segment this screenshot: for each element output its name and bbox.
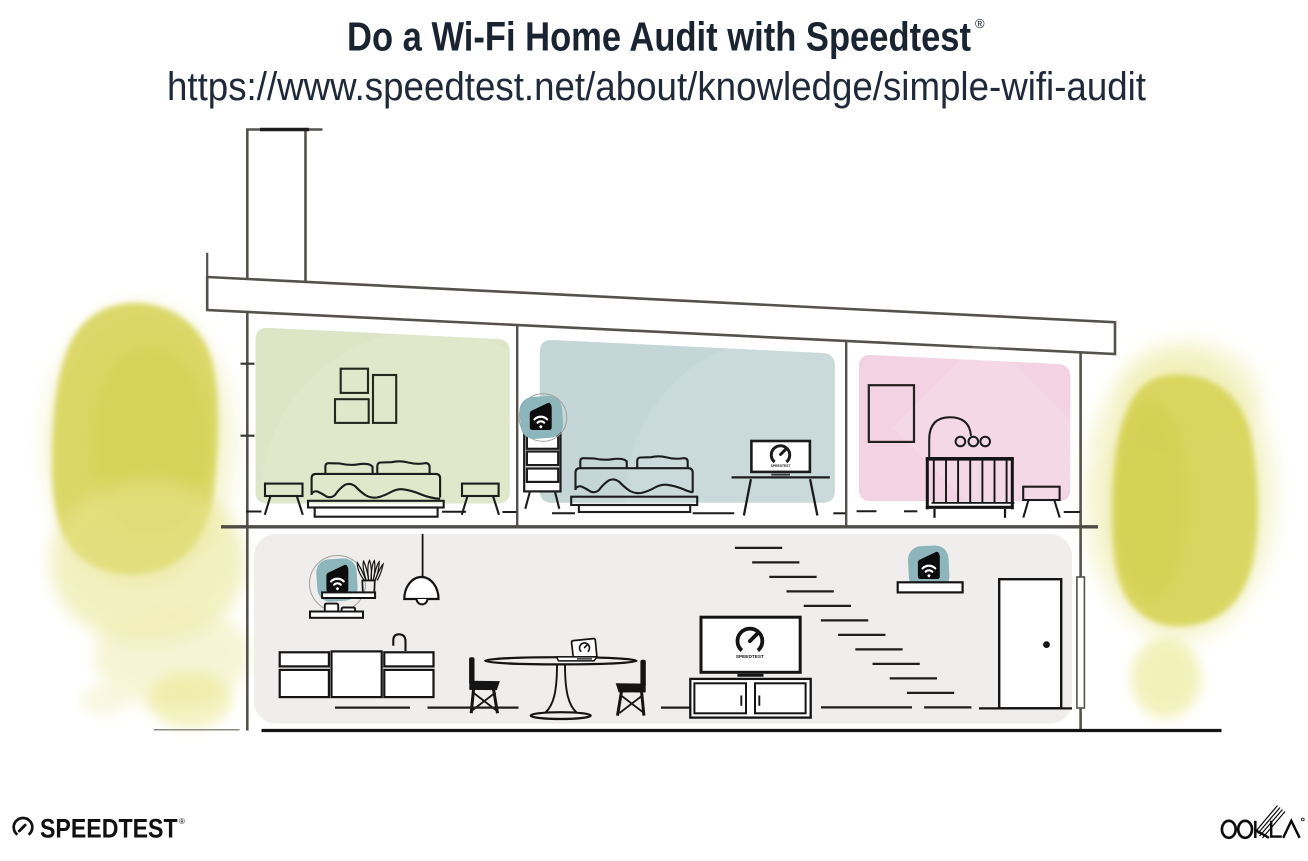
svg-text:®: ® [179, 817, 185, 826]
svg-text:https://www.speedtest.net/abou: https://www.speedtest.net/about/knowledg… [167, 65, 1146, 109]
svg-text:SPEEDTEST: SPEEDTEST [736, 654, 764, 659]
svg-text:SPEEDTEST: SPEEDTEST [40, 814, 178, 844]
svg-text:SPEEDTEST: SPEEDTEST [771, 464, 792, 468]
svg-text:®: ® [975, 16, 985, 31]
svg-text:Do a Wi-Fi Home Audit with Spe: Do a Wi-Fi Home Audit with Speedtest [347, 14, 971, 60]
